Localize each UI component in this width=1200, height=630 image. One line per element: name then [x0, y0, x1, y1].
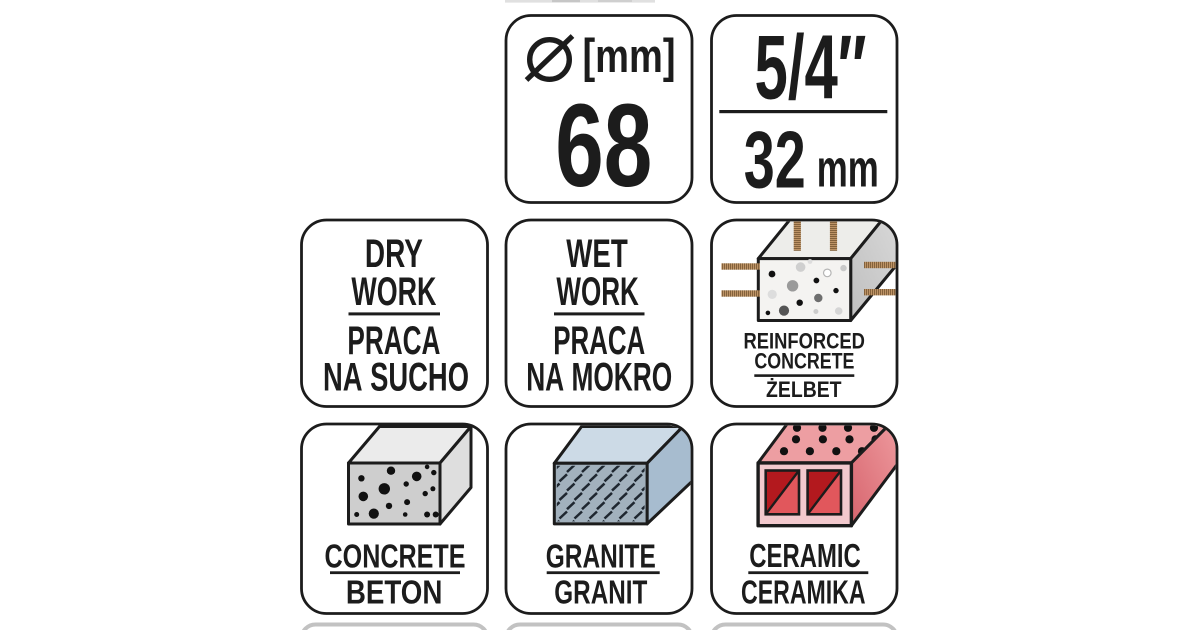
svg-text:BETON: BETON: [346, 574, 443, 611]
svg-text:CONCRETE: CONCRETE: [325, 537, 466, 574]
svg-text:GRANITE: GRANITE: [546, 537, 656, 574]
svg-text:5/4″: 5/4″: [755, 17, 867, 118]
svg-text:GRANIT: GRANIT: [554, 574, 647, 611]
svg-text:CONCRETE: CONCRETE: [754, 348, 854, 373]
svg-text:ŻELBET: ŻELBET: [766, 377, 842, 402]
svg-text:[mm]: [mm]: [583, 29, 676, 82]
svg-text:WORK: WORK: [556, 270, 639, 314]
svg-text:32: 32: [744, 115, 806, 205]
svg-text:NA MOKRO: NA MOKRO: [526, 355, 672, 399]
svg-text:mm: mm: [817, 139, 879, 198]
svg-text:CERAMIKA: CERAMIKA: [741, 574, 866, 611]
svg-text:WORK: WORK: [351, 270, 436, 314]
svg-text:NA SUCHO: NA SUCHO: [323, 355, 469, 399]
svg-text:68: 68: [555, 80, 652, 212]
svg-text:CERAMIC: CERAMIC: [749, 537, 861, 574]
